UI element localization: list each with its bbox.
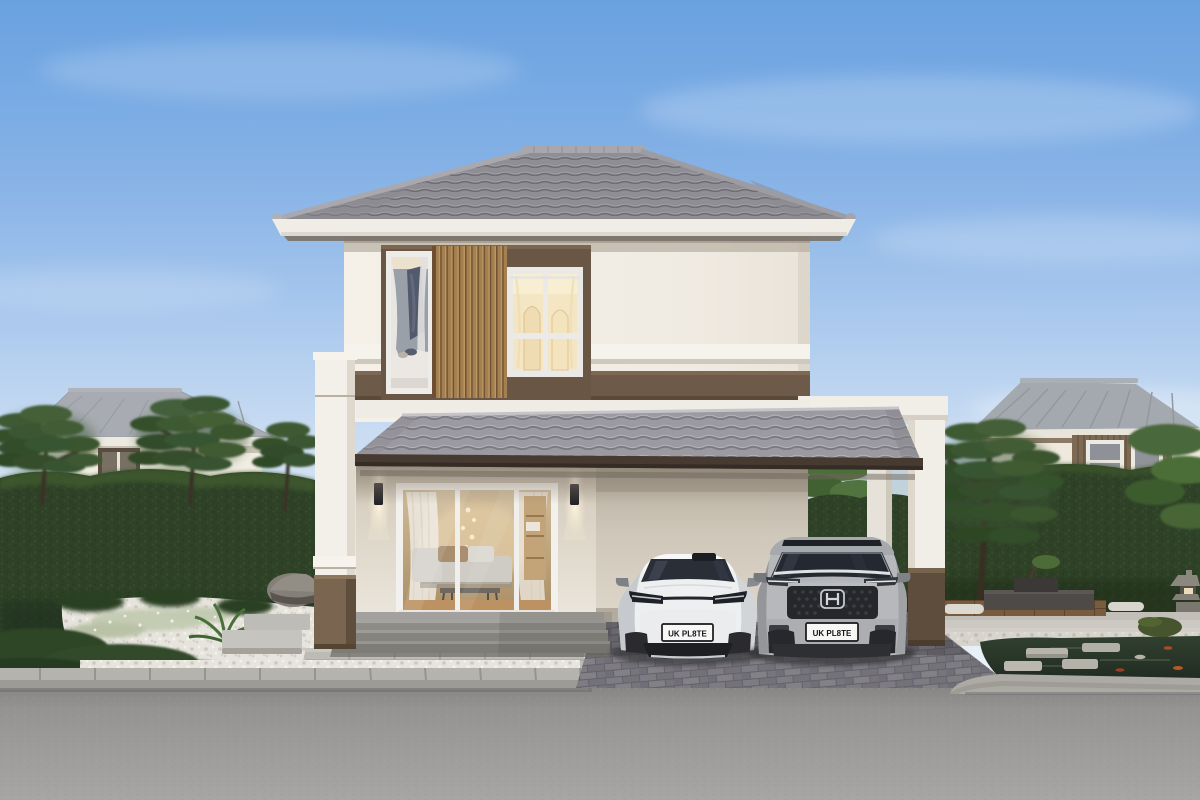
svg-text:UK PL8TE: UK PL8TE <box>813 629 852 638</box>
svg-text:UK PL8TE: UK PL8TE <box>668 630 707 639</box>
